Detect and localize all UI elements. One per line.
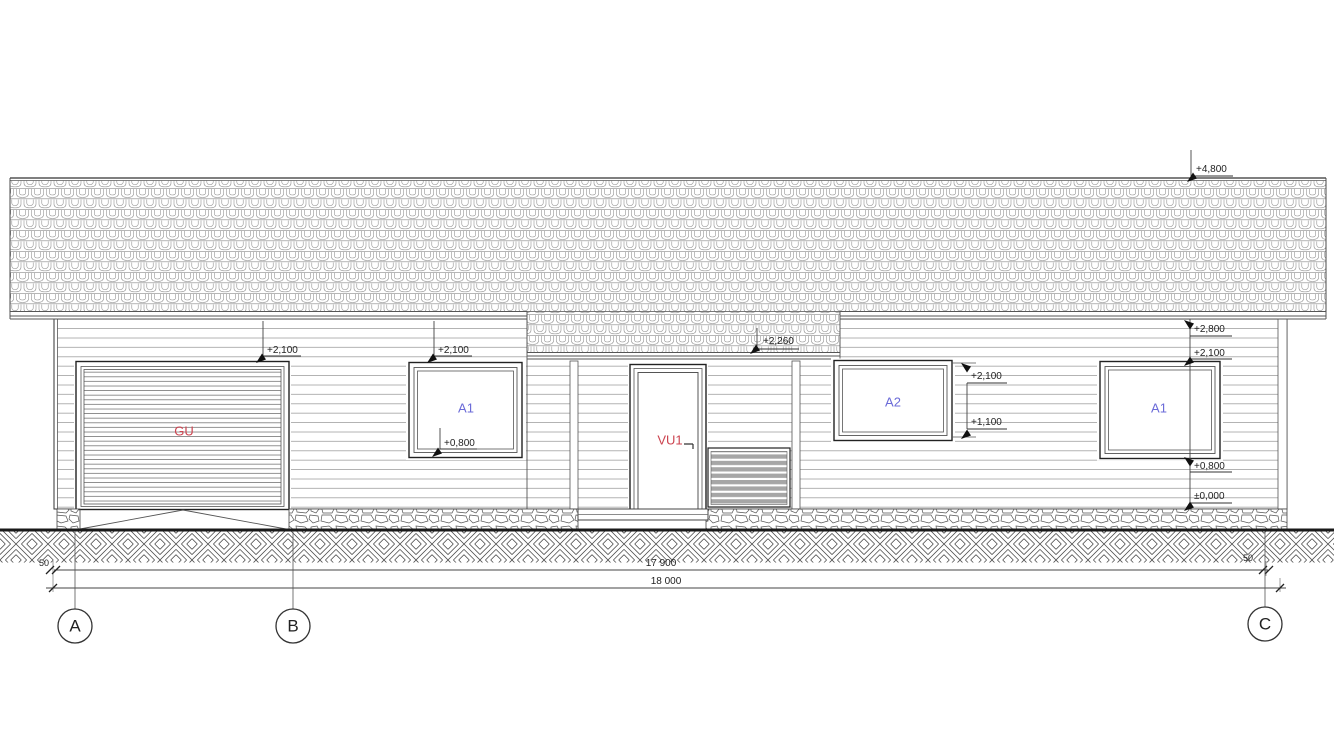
level-label-zero: ±0,000 bbox=[1194, 492, 1225, 502]
dimension-label-17900: 17 900 bbox=[646, 559, 677, 569]
level-label-a2-head: +2,100 bbox=[971, 372, 1002, 382]
level-label-a2-sill: +1,100 bbox=[971, 418, 1002, 428]
plinth-stones bbox=[706, 509, 1287, 530]
grid-label-a: A bbox=[69, 618, 80, 635]
ground-line bbox=[0, 529, 1334, 532]
level-label-eave: +2,800 bbox=[1194, 325, 1225, 335]
corner-board-right bbox=[1278, 319, 1287, 509]
dimension-label-offset-left: 50 bbox=[39, 559, 49, 568]
porch-trim-right bbox=[792, 361, 800, 509]
level-label-win-left-head: +2,100 bbox=[438, 346, 469, 356]
level-label-win-left-sill: +0,800 bbox=[444, 439, 475, 449]
plinth bbox=[57, 509, 1287, 530]
level-label-win-right-sill: +0,800 bbox=[1194, 462, 1225, 472]
plinth-stones bbox=[57, 509, 80, 530]
dimension-label-offset-right: 50 bbox=[1243, 554, 1253, 563]
grid-label-c: C bbox=[1259, 616, 1271, 633]
level-label-win-right-head: +2,100 bbox=[1194, 349, 1225, 359]
dimension-label-18000: 18 000 bbox=[651, 577, 682, 587]
louver-panel-slats bbox=[711, 452, 787, 505]
driveway-slope bbox=[80, 510, 286, 529]
level-label-porch-eave: +2,260 bbox=[763, 337, 794, 347]
level-label-garage-head: +2,100 bbox=[267, 346, 298, 356]
porch-trim-left bbox=[570, 361, 578, 509]
opening-label-window-mid: A2 bbox=[885, 396, 901, 409]
plinth-stones bbox=[289, 509, 578, 530]
level-label-ridge: +4,800 bbox=[1196, 165, 1227, 175]
roof-tiles bbox=[10, 181, 1326, 312]
opening-label-window-left: A1 bbox=[458, 402, 474, 415]
grid-label-b: B bbox=[287, 618, 298, 635]
drawing-linework bbox=[0, 0, 1334, 750]
louver-panel bbox=[708, 448, 790, 507]
opening-label-door: VU1 bbox=[657, 434, 682, 447]
opening-label-garage: GU bbox=[174, 425, 194, 438]
elevation-drawing: +4,800 +2,800 +2,260 +2,100 +2,100 +0,80… bbox=[0, 0, 1334, 750]
opening-label-window-right: A1 bbox=[1151, 402, 1167, 415]
